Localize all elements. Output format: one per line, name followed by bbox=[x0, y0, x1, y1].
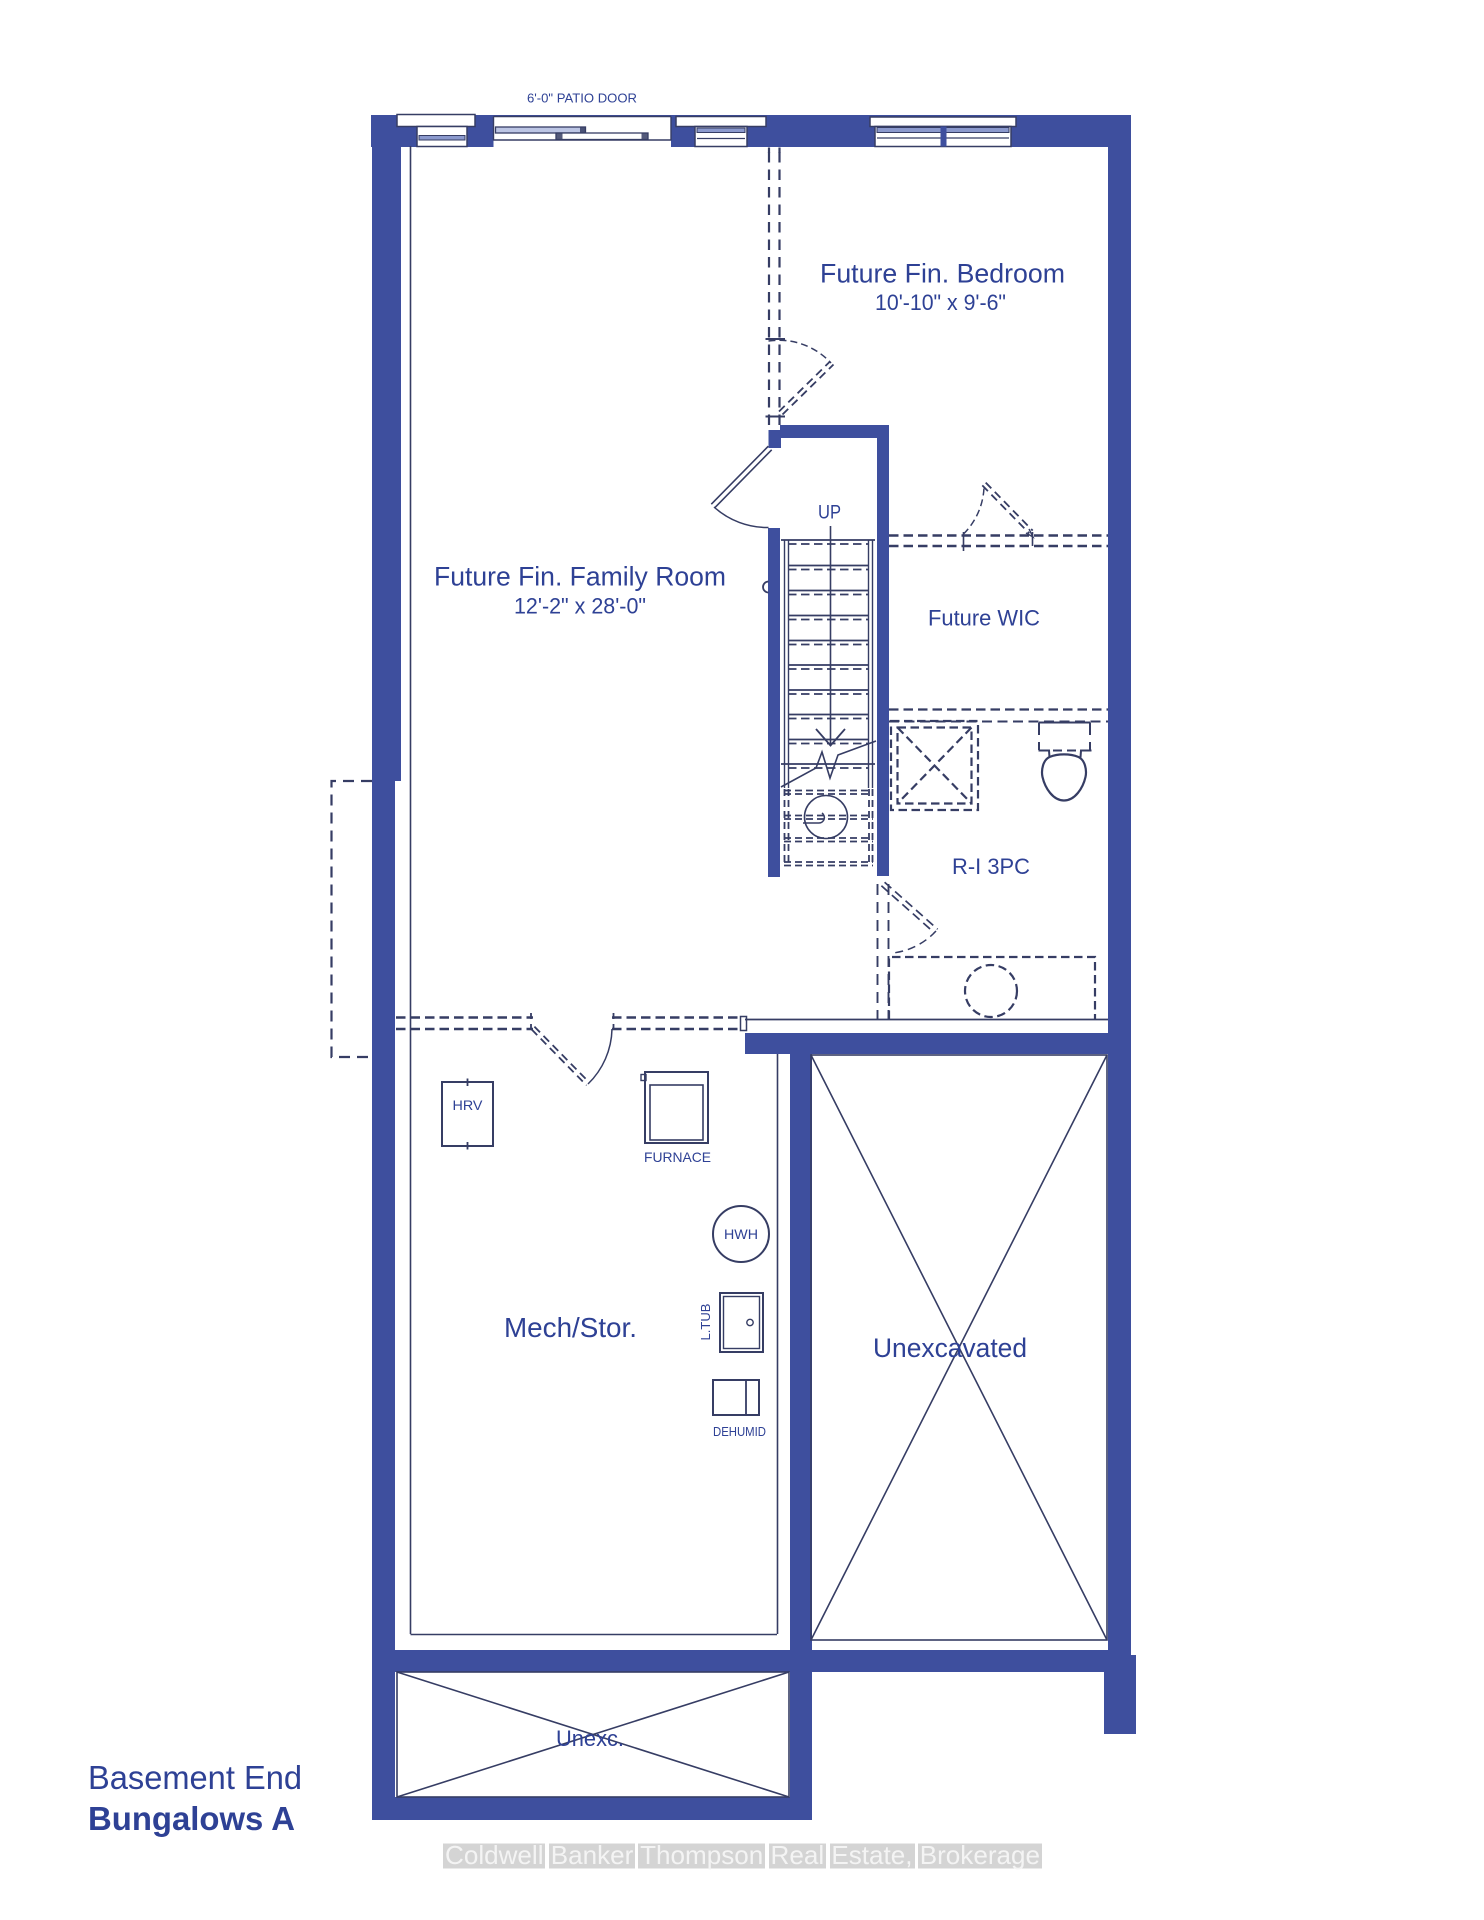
svg-text:6'-0" PATIO DOOR: 6'-0" PATIO DOOR bbox=[527, 91, 637, 106]
svg-text:12'-2" x 28'-0": 12'-2" x 28'-0" bbox=[514, 594, 646, 619]
svg-text:Coldwell Banker Thompson Real: Coldwell Banker Thompson Real Estate, Br… bbox=[445, 1840, 1040, 1870]
svg-text:Basement End: Basement End bbox=[88, 1759, 302, 1796]
svg-text:Unexcavated: Unexcavated bbox=[873, 1333, 1027, 1363]
svg-text:Future WIC: Future WIC bbox=[928, 606, 1040, 631]
svg-text:Future Fin. Family Room: Future Fin. Family Room bbox=[434, 562, 726, 592]
svg-text:UP: UP bbox=[818, 503, 841, 524]
svg-text:HRV: HRV bbox=[453, 1097, 484, 1113]
svg-text:10'-10" x 9'-6": 10'-10" x 9'-6" bbox=[875, 290, 1006, 315]
svg-text:Bungalows A: Bungalows A bbox=[88, 1800, 295, 1837]
svg-text:HWH: HWH bbox=[724, 1226, 758, 1242]
svg-text:DEHUMID: DEHUMID bbox=[713, 1425, 766, 1439]
svg-text:R-I 3PC: R-I 3PC bbox=[952, 854, 1030, 879]
svg-text:L.TUB: L.TUB bbox=[698, 1304, 713, 1341]
svg-text:Unexc.: Unexc. bbox=[556, 1726, 624, 1751]
svg-text:Mech/Stor.: Mech/Stor. bbox=[504, 1312, 637, 1343]
svg-text:Future Fin. Bedroom: Future Fin. Bedroom bbox=[820, 259, 1065, 289]
svg-text:FURNACE: FURNACE bbox=[644, 1149, 711, 1165]
